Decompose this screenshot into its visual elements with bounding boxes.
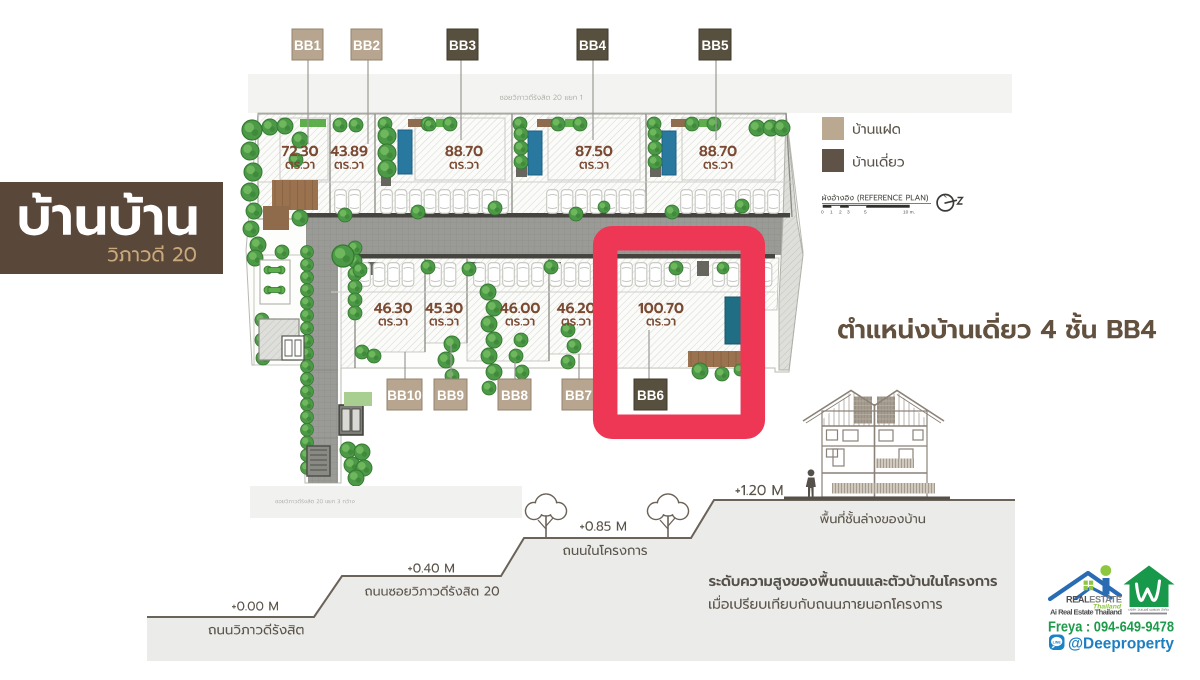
- svg-text:BB8: BB8: [501, 388, 528, 403]
- svg-text:10 m.: 10 m.: [903, 210, 915, 216]
- svg-text:0: 0: [821, 210, 824, 216]
- svg-text:BB6: BB6: [637, 388, 664, 403]
- svg-text:BB1: BB1: [294, 38, 321, 53]
- svg-text:LINE: LINE: [1053, 640, 1062, 644]
- svg-text:Freya : 094-649-9478: Freya : 094-649-9478: [1048, 620, 1174, 636]
- svg-text:BB2: BB2: [353, 38, 380, 53]
- svg-text:5: 5: [864, 210, 867, 216]
- svg-text:1: 1: [830, 210, 833, 216]
- svg-text:BB3: BB3: [449, 38, 476, 53]
- svg-text:2: 2: [839, 210, 842, 216]
- svg-text:BB10: BB10: [387, 388, 422, 403]
- svg-text:BB9: BB9: [437, 388, 464, 403]
- svg-text:3: 3: [847, 210, 850, 216]
- svg-text:BB5: BB5: [701, 38, 728, 53]
- svg-text:Ai Real Estate Thailand: Ai Real Estate Thailand: [1050, 608, 1122, 617]
- svg-text:@Deeproperty: @Deeproperty: [1068, 636, 1174, 653]
- svg-text:BB4: BB4: [579, 38, 606, 53]
- svg-text:BB7: BB7: [565, 388, 592, 403]
